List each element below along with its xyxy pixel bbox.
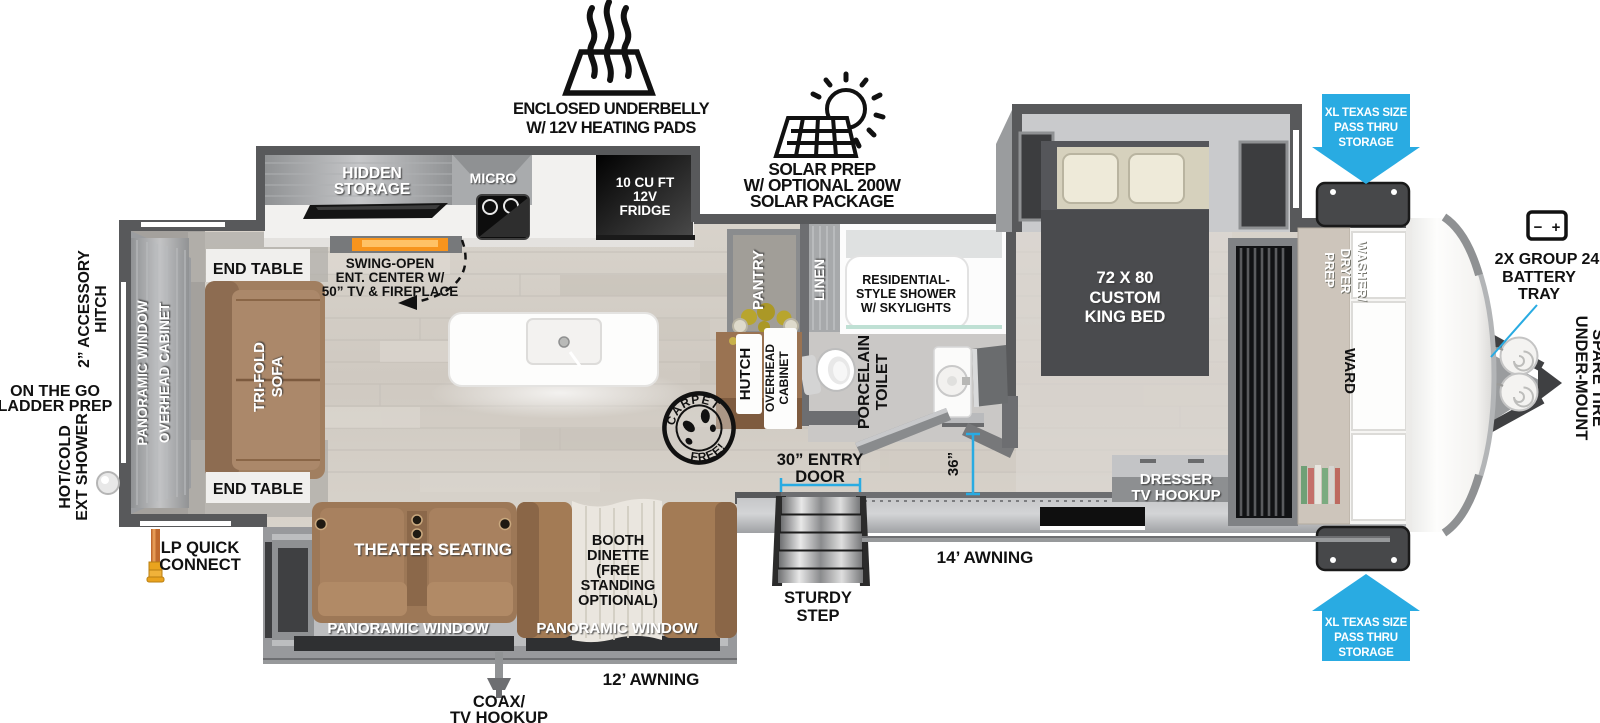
- svg-text:RESIDENTIAL-: RESIDENTIAL-: [862, 273, 950, 287]
- svg-text:STORAGE: STORAGE: [1338, 137, 1394, 149]
- svg-text:+: +: [1552, 219, 1561, 236]
- svg-text:14’ AWNING: 14’ AWNING: [937, 548, 1034, 567]
- svg-text:−: −: [1534, 219, 1543, 236]
- svg-text:SOLAR PACKAGE: SOLAR PACKAGE: [750, 191, 894, 211]
- svg-text:HOT/COLD: HOT/COLD: [57, 425, 74, 509]
- svg-text:50” TV & FIREPLACE: 50” TV & FIREPLACE: [322, 284, 459, 299]
- svg-text:PASS THRU: PASS THRU: [1334, 122, 1398, 134]
- svg-text:HUTCH: HUTCH: [737, 348, 754, 401]
- svg-text:HITCH: HITCH: [93, 285, 110, 332]
- svg-text:KING BED: KING BED: [1085, 308, 1166, 326]
- svg-text:PANORAMIC WINDOW: PANORAMIC WINDOW: [536, 620, 698, 637]
- svg-text:EXT SHOWER: EXT SHOWER: [74, 413, 91, 521]
- svg-text:BATTERY: BATTERY: [1502, 269, 1576, 286]
- svg-text:PANTRY: PANTRY: [750, 250, 767, 310]
- svg-text:WARD: WARD: [1341, 348, 1358, 394]
- svg-text:STURDY: STURDY: [784, 589, 852, 607]
- svg-text:12’ AWNING: 12’ AWNING: [603, 670, 700, 689]
- svg-text:THEATER SEATING: THEATER SEATING: [354, 540, 512, 559]
- svg-text:STEP: STEP: [796, 607, 839, 625]
- svg-text:END TABLE: END TABLE: [213, 261, 304, 278]
- svg-text:UNDER-MOUNT: UNDER-MOUNT: [1572, 316, 1590, 441]
- svg-text:DOOR: DOOR: [795, 468, 845, 486]
- svg-text:PANORAMIC WINDOW: PANORAMIC WINDOW: [135, 300, 150, 445]
- svg-text:PASS THRU: PASS THRU: [1334, 632, 1398, 644]
- svg-text:WASHER/: WASHER/: [1354, 241, 1369, 302]
- svg-text:MICRO: MICRO: [470, 170, 517, 186]
- svg-text:TRI-FOLD: TRI-FOLD: [251, 342, 268, 412]
- svg-text:HIDDEN: HIDDEN: [342, 165, 401, 182]
- svg-text:36”: 36”: [945, 452, 962, 476]
- svg-text:LP QUICK: LP QUICK: [161, 539, 240, 557]
- svg-text:SWING-OPEN: SWING-OPEN: [346, 256, 435, 271]
- svg-text:ENCLOSED UNDERBELLY: ENCLOSED UNDERBELLY: [513, 100, 710, 118]
- svg-text:DRYER: DRYER: [1338, 248, 1353, 294]
- svg-text:TOILET: TOILET: [874, 353, 891, 410]
- svg-text:FRIDGE: FRIDGE: [619, 203, 670, 218]
- svg-text:PANORAMIC WINDOW: PANORAMIC WINDOW: [327, 620, 489, 637]
- svg-text:PREP: PREP: [1322, 252, 1337, 288]
- svg-text:CONNECT: CONNECT: [159, 556, 241, 574]
- svg-text:2” ACCESSORY: 2” ACCESSORY: [76, 249, 93, 367]
- svg-text:STORAGE: STORAGE: [1338, 647, 1394, 659]
- svg-text:STORAGE: STORAGE: [334, 181, 410, 198]
- svg-text:DINETTE: DINETTE: [587, 548, 649, 564]
- svg-text:72 X 80: 72 X 80: [1097, 269, 1154, 287]
- svg-text:2X GROUP 24: 2X GROUP 24: [1495, 251, 1600, 268]
- svg-text:OVERHEAD CABINET: OVERHEAD CABINET: [157, 302, 172, 443]
- svg-text:LADDER PREP: LADDER PREP: [0, 398, 113, 415]
- svg-text:TRAY: TRAY: [1518, 286, 1560, 303]
- svg-text:12V: 12V: [633, 189, 657, 204]
- svg-text:END TABLE: END TABLE: [213, 481, 304, 498]
- svg-text:LINEN: LINEN: [811, 259, 827, 301]
- svg-text:BOOTH: BOOTH: [592, 533, 644, 549]
- svg-text:OPTIONAL): OPTIONAL): [578, 593, 658, 609]
- svg-text:SOFA: SOFA: [269, 356, 286, 397]
- svg-text:CUSTOM: CUSTOM: [1089, 289, 1160, 307]
- svg-text:W/ 12V HEATING PADS: W/ 12V HEATING PADS: [526, 119, 696, 137]
- svg-text:(FREE: (FREE: [596, 563, 640, 579]
- svg-text:STANDING: STANDING: [581, 578, 656, 594]
- svg-text:XL TEXAS SIZE: XL TEXAS SIZE: [1325, 107, 1408, 119]
- svg-text:CABINET: CABINET: [777, 351, 791, 405]
- svg-text:W/ SKYLIGHTS: W/ SKYLIGHTS: [861, 301, 951, 315]
- svg-text:30” ENTRY: 30” ENTRY: [777, 451, 864, 469]
- svg-text:XL TEXAS SIZE: XL TEXAS SIZE: [1325, 617, 1408, 629]
- svg-text:ENT. CENTER W/: ENT. CENTER W/: [336, 270, 445, 285]
- svg-text:PORCELAIN: PORCELAIN: [856, 335, 873, 429]
- svg-text:OVERHEAD: OVERHEAD: [763, 344, 777, 412]
- svg-text:SPARE TIRE: SPARE TIRE: [1589, 329, 1600, 427]
- svg-text:STYLE SHOWER: STYLE SHOWER: [856, 287, 956, 301]
- svg-text:TV HOOKUP: TV HOOKUP: [450, 709, 548, 723]
- svg-text:DRESSER: DRESSER: [1140, 471, 1213, 488]
- svg-text:10 CU FT: 10 CU FT: [616, 175, 675, 190]
- svg-text:TV HOOKUP: TV HOOKUP: [1131, 487, 1220, 504]
